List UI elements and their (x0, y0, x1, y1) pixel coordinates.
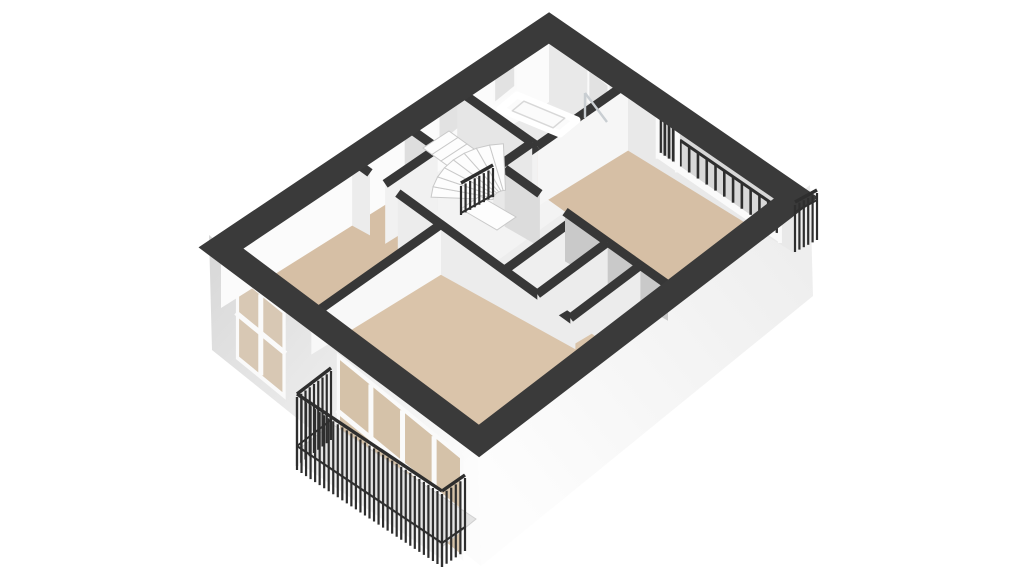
floorplan-3d-render (0, 0, 1024, 576)
floorplan-viewport (0, 0, 1024, 576)
